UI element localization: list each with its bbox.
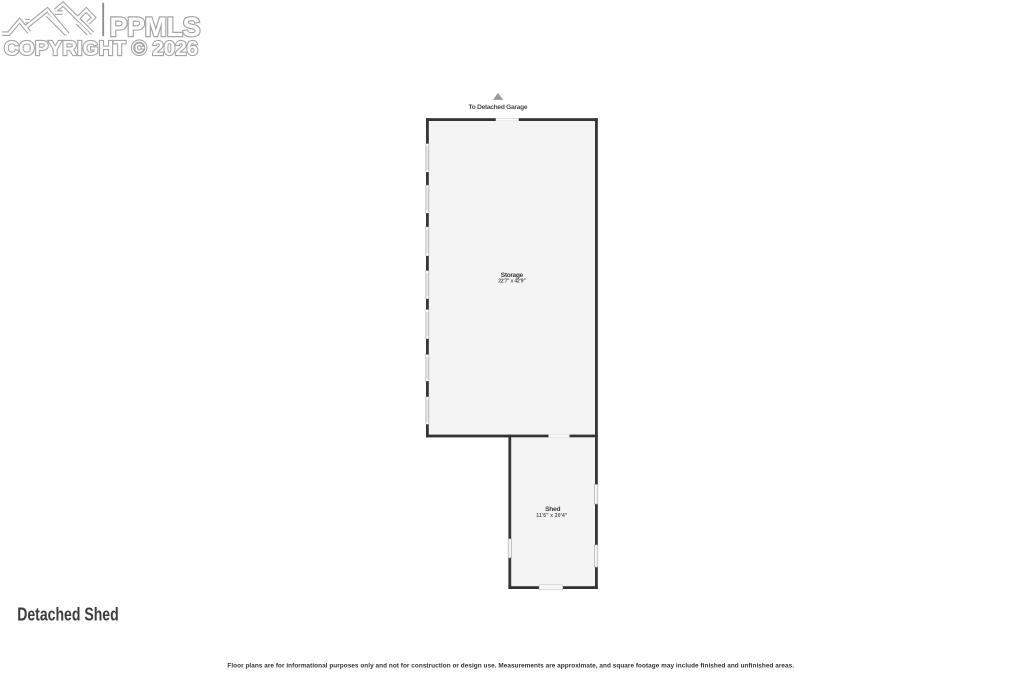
svg-text:To Detached Garage: To Detached Garage xyxy=(469,104,528,111)
svg-text:COPYRIGHT © 2026: COPYRIGHT © 2026 xyxy=(4,37,198,60)
svg-text:Shed: Shed xyxy=(545,506,560,513)
svg-text:Detached Shed: Detached Shed xyxy=(17,604,119,624)
svg-text:11'6" x 20'4": 11'6" x 20'4" xyxy=(536,513,568,519)
svg-text:Floor plans are for informatio: Floor plans are for informational purpos… xyxy=(227,663,794,670)
svg-text:22'7" x 42'9": 22'7" x 42'9" xyxy=(498,279,526,285)
